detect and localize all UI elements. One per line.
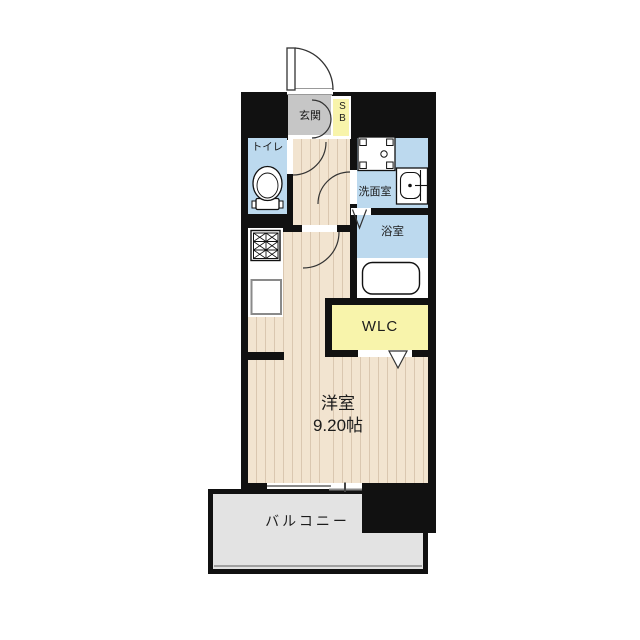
bathtub-area	[357, 258, 428, 298]
room-door-opening	[302, 225, 337, 232]
shoe-box-label: SB	[334, 101, 348, 125]
entrance-label: 玄関	[288, 110, 332, 123]
bathroom-label: 浴室	[357, 226, 428, 239]
wlc-label: WLC	[332, 318, 428, 335]
entrance-door-swing-icon	[287, 48, 333, 90]
bathroom-door-opening	[351, 208, 371, 215]
western-room-size: 9.20帖	[248, 416, 428, 436]
toilet-label: トイレ	[248, 141, 287, 153]
western-room-label: 洋室	[248, 394, 428, 414]
entrance-door-threshold	[287, 88, 333, 95]
hallway-floor	[293, 139, 350, 225]
wall-stub	[241, 352, 284, 360]
balcony-drain-line	[214, 565, 422, 567]
balcony-label: バルコニー	[210, 513, 405, 529]
kitchen-counter	[248, 228, 283, 317]
washroom-label: 洗面室	[352, 186, 398, 199]
western-room-floor-center	[325, 232, 350, 298]
floor-plan: 玄関 SB トイレ 洗面室 浴室 WLC 洋室 9.20帖 バルコニー	[0, 0, 640, 640]
